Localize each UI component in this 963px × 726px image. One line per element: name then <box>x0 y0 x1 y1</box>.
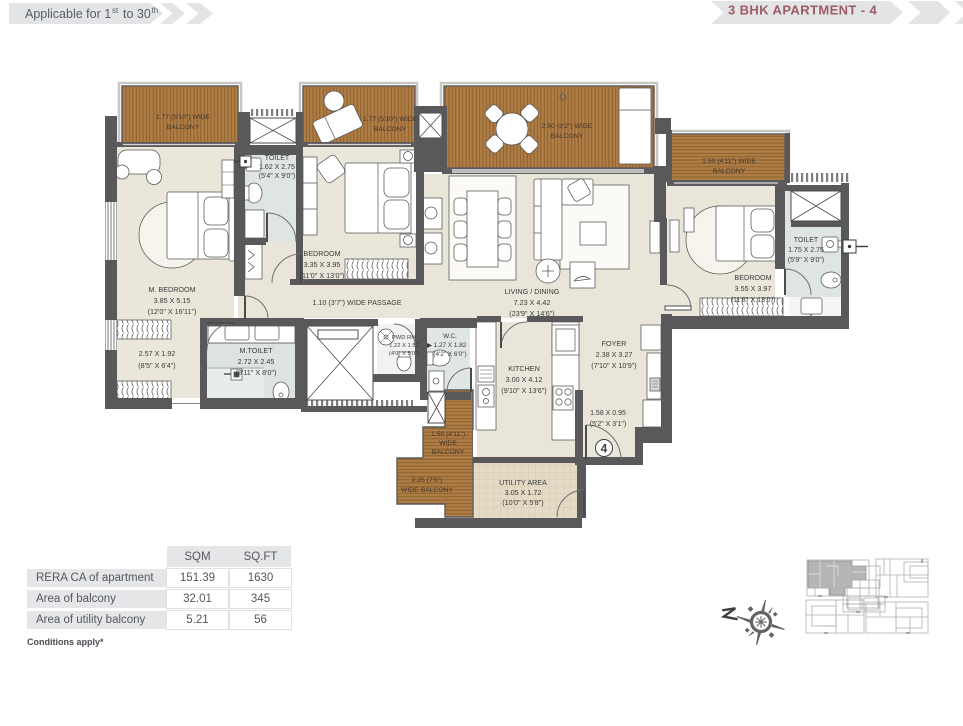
svg-text:2.50 (8'2") WIDE: 2.50 (8'2") WIDE <box>542 123 593 130</box>
svg-text:2.57 X 1.92: 2.57 X 1.92 <box>139 349 176 358</box>
svg-text:(11'8" X 13'0"): (11'8" X 13'0") <box>731 295 776 304</box>
svg-text:Applicable for 1: Applicable for 1 <box>25 7 111 21</box>
svg-text:3.55 X 3.97: 3.55 X 3.97 <box>735 284 772 293</box>
svg-text:3.85 X 5.15: 3.85 X 5.15 <box>154 296 191 305</box>
svg-text:4: 4 <box>601 442 608 456</box>
svg-text:BEDROOM: BEDROOM <box>303 249 340 258</box>
svg-text:BEDROOM: BEDROOM <box>734 273 771 282</box>
svg-text:UTILITY AREA: UTILITY AREA <box>499 478 547 487</box>
svg-text:M.TOILET: M.TOILET <box>239 346 273 355</box>
svg-text:TOILET: TOILET <box>794 237 819 244</box>
svg-text:(23'9" X 14'6"): (23'9" X 14'6") <box>509 309 554 318</box>
svg-text:KITCHEN: KITCHEN <box>508 364 540 373</box>
svg-text:1.75 X 2.75: 1.75 X 2.75 <box>788 247 824 254</box>
svg-text:(5'2" X 3'1"): (5'2" X 3'1") <box>590 421 626 428</box>
svg-text:th: th <box>152 6 159 15</box>
svg-text:to 30: to 30 <box>123 7 151 21</box>
svg-text:(5'9" X 9'0"): (5'9" X 9'0") <box>788 257 824 264</box>
svg-text:1.58 X 0.95: 1.58 X 0.95 <box>590 410 626 417</box>
svg-text:BALCONY: BALCONY <box>432 449 465 456</box>
svg-text:1.27 X 1.82: 1.27 X 1.82 <box>434 342 467 349</box>
svg-text:7.23 X 4.42: 7.23 X 4.42 <box>514 298 551 307</box>
svg-text:WIDE: WIDE <box>439 440 457 447</box>
svg-text:(11'0" X 13'0"): (11'0" X 13'0") <box>300 271 345 280</box>
svg-text:BALCONY: BALCONY <box>374 126 407 133</box>
svg-text:1.50 (4'11"): 1.50 (4'11") <box>431 431 465 438</box>
svg-text:(9'10" X 13'6"): (9'10" X 13'6") <box>501 386 546 395</box>
svg-text:LIVING / DINING: LIVING / DINING <box>505 287 560 296</box>
svg-text:1.10 (3'7") WIDE PASSAGE: 1.10 (3'7") WIDE PASSAGE <box>312 298 401 307</box>
svg-text:2.25 (7'5"): 2.25 (7'5") <box>412 477 443 484</box>
svg-text:FOYER: FOYER <box>602 339 627 348</box>
svg-text:BALCONY: BALCONY <box>551 133 584 140</box>
svg-text:1.50 (4'11") WIDE: 1.50 (4'11") WIDE <box>702 158 756 165</box>
svg-text:2.38 X 3.27: 2.38 X 3.27 <box>596 350 633 359</box>
svg-text:(5'4" X 9'0"): (5'4" X 9'0") <box>259 173 295 180</box>
svg-text:(4'0" X 5'0"): (4'0" X 5'0") <box>389 351 419 357</box>
svg-text:3.05 X 1.72: 3.05 X 1.72 <box>505 488 542 497</box>
svg-text:1.77 (5'10") WIDE: 1.77 (5'10") WIDE <box>363 116 418 123</box>
svg-text:(4'2" X 6'0"): (4'2" X 6'0") <box>433 351 466 358</box>
svg-text:1.62 X 2.75: 1.62 X 2.75 <box>259 164 295 171</box>
svg-text:PWD RM: PWD RM <box>392 335 416 341</box>
svg-text:st: st <box>112 6 119 15</box>
svg-text:(8'11" X 8'0"): (8'11" X 8'0") <box>236 368 277 377</box>
svg-text:W.C.: W.C. <box>443 333 457 340</box>
svg-text:(7'10" X 10'9"): (7'10" X 10'9") <box>591 361 636 370</box>
svg-text:3 BHK APARTMENT - 4: 3 BHK APARTMENT - 4 <box>728 3 878 18</box>
svg-text:M. BEDROOM: M. BEDROOM <box>148 285 195 294</box>
svg-text:(8'5" X 6'4"): (8'5" X 6'4") <box>138 361 175 370</box>
svg-text:(12'0" X 16'11"): (12'0" X 16'11") <box>148 307 197 316</box>
svg-text:TOILET: TOILET <box>265 155 290 162</box>
svg-text:2.72 X 2.45: 2.72 X 2.45 <box>238 357 275 366</box>
svg-text:(10'0" X 5'8"): (10'0" X 5'8") <box>502 498 543 507</box>
svg-text:1.22 X 1.52: 1.22 X 1.52 <box>389 343 419 349</box>
svg-text:3.35 X 3.95: 3.35 X 3.95 <box>304 260 341 269</box>
svg-text:1.77 (5'10") WIDE: 1.77 (5'10") WIDE <box>156 114 211 121</box>
svg-text:BALCONY: BALCONY <box>167 124 200 131</box>
svg-text:3.00 X 4.12: 3.00 X 4.12 <box>506 375 543 384</box>
svg-text:WIDE BALCONY: WIDE BALCONY <box>401 487 454 494</box>
svg-text:BALCONY: BALCONY <box>713 168 746 175</box>
